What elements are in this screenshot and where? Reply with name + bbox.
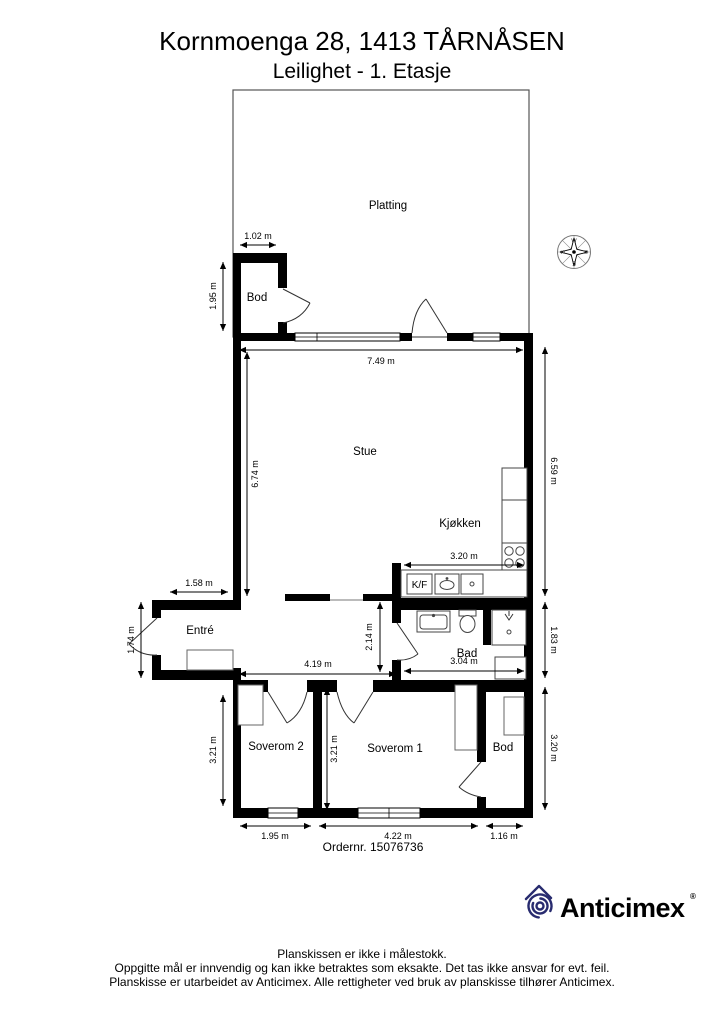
anticimex-wordmark: Anticimex <box>560 893 685 923</box>
svg-text:3.21 m: 3.21 m <box>329 735 339 763</box>
svg-text:1.74 m: 1.74 m <box>126 626 136 654</box>
soverom1-window <box>358 808 420 818</box>
room-label-entre: Entré <box>186 625 214 637</box>
room-label-bod-bottom: Bod <box>493 742 513 754</box>
compass-north: N <box>582 250 588 254</box>
svg-text:6.59 m: 6.59 m <box>549 457 559 485</box>
kitchen-cabinet <box>502 468 527 500</box>
fridge-label: K/F <box>412 580 428 591</box>
platting-outline <box>233 90 529 337</box>
svg-text:1.58 m: 1.58 m <box>185 578 213 588</box>
svg-text:1.83 m: 1.83 m <box>549 626 559 654</box>
registered-mark: ® <box>690 892 696 901</box>
fridge-freezer: K/F <box>407 574 432 594</box>
order-number: Ordernr. 15076736 <box>323 840 424 854</box>
svg-text:3.04 m: 3.04 m <box>450 656 478 666</box>
compass-east: E <box>572 260 576 266</box>
shower <box>492 610 526 645</box>
footer-line-3: Planskisse er utarbeidet av Anticimex. A… <box>109 975 615 989</box>
svg-text:1.02 m: 1.02 m <box>244 231 272 241</box>
soverom2-wardrobe <box>238 685 263 725</box>
platting-area: Platting <box>233 90 529 337</box>
svg-text:3.21 m: 3.21 m <box>208 736 218 764</box>
floorplan-canvas: Kornmoenga 28, 1413 TÅRNÅSEN Leilighet -… <box>0 0 724 1024</box>
stue-window-left <box>295 333 400 341</box>
stove <box>502 543 527 572</box>
entre-closet <box>187 650 233 670</box>
room-label-kjokken: Kjøkken <box>439 518 481 530</box>
page-subtitle: Leilighet - 1. Etasje <box>273 60 452 83</box>
compass-south: S <box>561 250 567 254</box>
room-label-soverom2: Soverom 2 <box>248 741 304 753</box>
svg-text:1.95 m: 1.95 m <box>261 831 289 841</box>
room-label-soverom1: Soverom 1 <box>367 743 423 755</box>
washing-machine <box>495 657 526 679</box>
soverom1-wardrobe <box>455 685 477 750</box>
svg-text:7.49 m: 7.49 m <box>367 356 395 366</box>
compass-west: W <box>571 239 577 245</box>
soverom2-window <box>268 808 298 818</box>
footer-line-1: Planskissen er ikke i målestokk. <box>277 947 446 961</box>
svg-text:1.16 m: 1.16 m <box>490 831 518 841</box>
page-title: Kornmoenga 28, 1413 TÅRNÅSEN <box>159 26 565 56</box>
room-label-platting: Platting <box>369 200 407 212</box>
room-label-bod-top: Bod <box>247 292 267 304</box>
kitchen-counter-right <box>502 500 527 543</box>
svg-text:1.95 m: 1.95 m <box>208 282 218 310</box>
toilet <box>459 610 476 633</box>
svg-text:4.19 m: 4.19 m <box>304 659 332 669</box>
svg-text:6.74 m: 6.74 m <box>250 460 260 488</box>
kitchen-sink <box>435 574 459 594</box>
compass-rose: W N E S <box>558 236 591 269</box>
svg-text:2.14 m: 2.14 m <box>364 623 374 651</box>
footer-line-2: Oppgitte mål er innvendig og kan ikke be… <box>115 961 610 975</box>
bod-shelf <box>504 697 524 735</box>
room-label-stue: Stue <box>353 446 377 458</box>
svg-text:3.20 m: 3.20 m <box>549 734 559 762</box>
svg-text:3.20 m: 3.20 m <box>450 551 478 561</box>
bathroom-sink <box>417 611 450 632</box>
dishwasher <box>461 574 483 594</box>
stue-window-right <box>473 333 500 341</box>
